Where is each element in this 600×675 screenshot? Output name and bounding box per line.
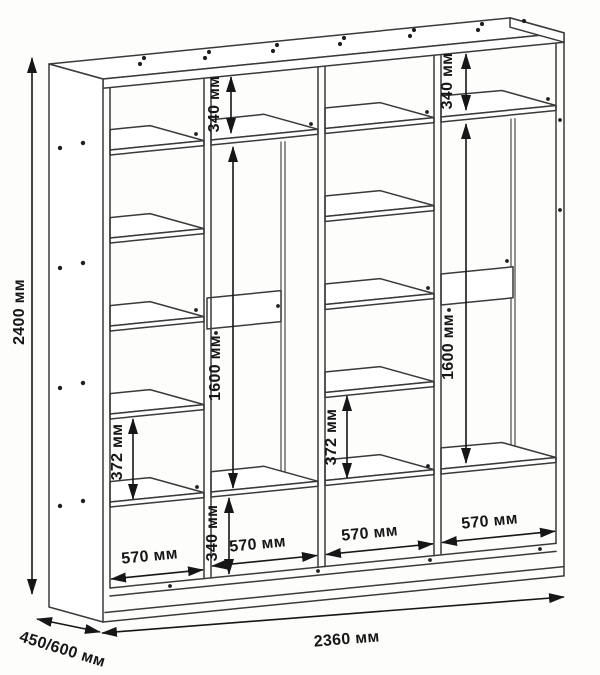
cabinet-structure bbox=[49, 18, 564, 622]
dim-section2-top-gap-label: 340 мм bbox=[206, 76, 223, 133]
dim-section4-width-label: 570 мм bbox=[461, 510, 519, 533]
dim-height-label: 2400 мм bbox=[11, 279, 28, 345]
dimension-section2-width: 570 мм bbox=[212, 533, 317, 566]
top-panel bbox=[49, 18, 564, 88]
dim-section2-width-label: 570 мм bbox=[229, 533, 287, 556]
stiffener-panel bbox=[441, 267, 513, 305]
dim-section2-hanging-label: 1600 мм bbox=[207, 335, 224, 401]
dim-section3-width-label: 570 мм bbox=[341, 522, 399, 545]
wardrobe-technical-drawing: 2400 мм 450/600 мм 2360 мм 570 мм 570 мм… bbox=[0, 0, 600, 675]
dimension-section1-width: 570 мм bbox=[111, 545, 203, 579]
dimension-section2-bottom-gap: 340 мм bbox=[204, 498, 229, 574]
dim-section2-bottom-gap-label: 340 мм bbox=[204, 505, 221, 562]
dim-section4-top-gap-label: 340 мм bbox=[439, 53, 456, 110]
dim-depth-label: 450/600 мм bbox=[17, 629, 107, 671]
dimension-overall-width: 2360 мм bbox=[102, 597, 564, 651]
left-side-panel bbox=[49, 64, 103, 622]
shelves-section-3 bbox=[325, 103, 434, 486]
dimension-section3-width: 570 мм bbox=[326, 522, 433, 554]
dim-width-label: 2360 мм bbox=[313, 628, 380, 650]
stiffener-panel bbox=[207, 291, 281, 329]
dimension-depth: 450/600 мм bbox=[17, 619, 107, 671]
dim-section3-shelf-gap-label: 372 мм bbox=[323, 409, 340, 466]
dimension-overall-height: 2400 мм bbox=[11, 58, 32, 594]
dim-section1-shelf-gap-label: 372 мм bbox=[109, 424, 126, 481]
dim-section1-width-label: 570 мм bbox=[121, 545, 179, 568]
dimension-section4-width: 570 мм bbox=[442, 510, 555, 542]
dim-section4-hanging-label: 1600 мм bbox=[440, 314, 457, 380]
drawing-canvas: 2400 мм 450/600 мм 2360 мм 570 мм 570 мм… bbox=[0, 0, 600, 675]
